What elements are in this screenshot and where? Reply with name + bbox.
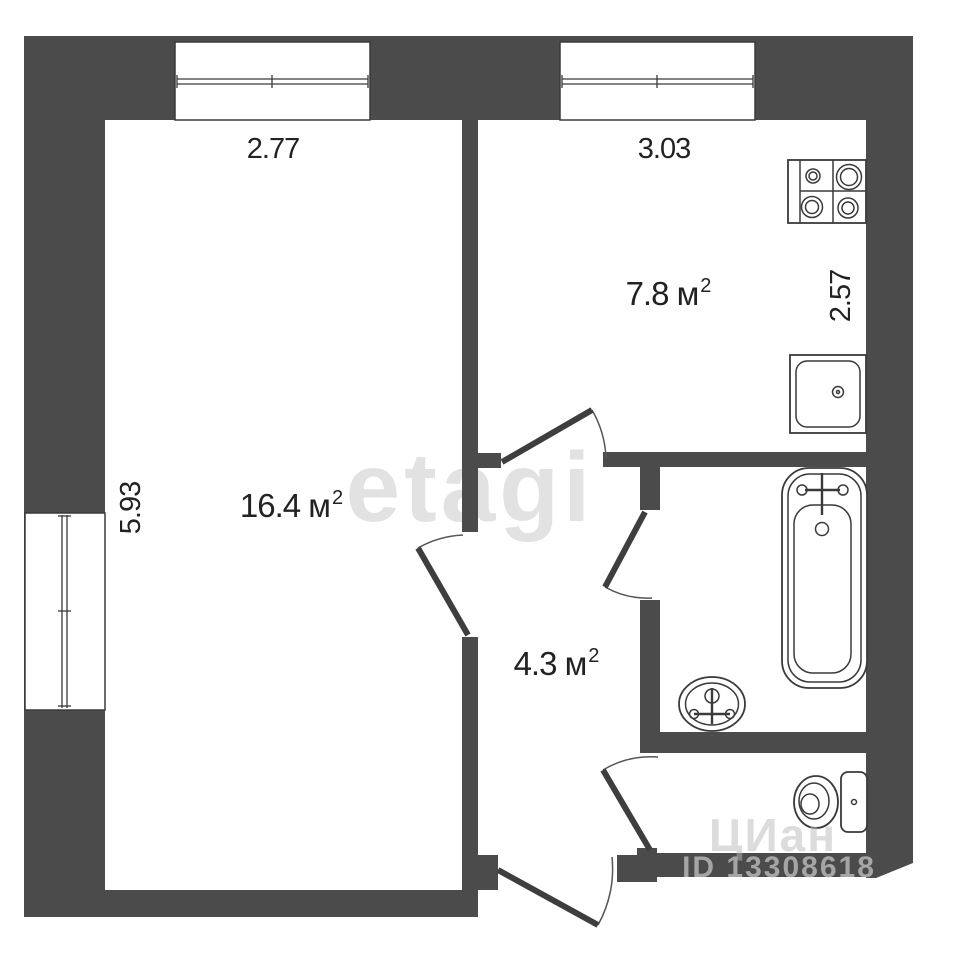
wall-bathroom-left-lower bbox=[640, 600, 660, 753]
dim-living-width: 2.77 bbox=[247, 133, 299, 165]
door-entrance-arc bbox=[598, 857, 613, 925]
label-kitchen-area: 7.8 м2 bbox=[626, 275, 712, 312]
door-entrance-leaf bbox=[498, 870, 598, 925]
label-living-area: 16.4 м2 bbox=[240, 487, 343, 524]
bathtub-icon bbox=[782, 468, 867, 688]
wall-divider-living-upper bbox=[462, 120, 478, 532]
wall-kitchen-bathroom bbox=[603, 452, 866, 467]
stove-icon bbox=[788, 160, 866, 223]
dim-kitchen-width: 3.03 bbox=[638, 133, 690, 165]
door-bathroom-leaf bbox=[605, 512, 645, 587]
wall-right bbox=[866, 36, 913, 878]
wall-bottom-hall-right-stub bbox=[617, 855, 657, 882]
floor-plan: etagi bbox=[0, 0, 960, 960]
door-toilet-arc bbox=[603, 757, 658, 770]
dim-kitchen-depth: 2.57 bbox=[825, 270, 857, 322]
wall-bathroom-left-upper bbox=[640, 467, 660, 510]
door-toilet bbox=[603, 757, 658, 850]
wall-divider-living-lower bbox=[462, 637, 478, 890]
floor-plan-canvas: etagi bbox=[0, 0, 960, 960]
door-bathroom-arc bbox=[605, 587, 652, 598]
door-bathroom bbox=[605, 512, 652, 598]
window-living bbox=[175, 42, 370, 120]
door-living bbox=[418, 535, 468, 635]
wall-bottom-living bbox=[24, 890, 478, 917]
dim-living-depth: 5.93 bbox=[115, 482, 147, 534]
kitchen-sink-icon bbox=[790, 355, 866, 433]
window-balcony bbox=[25, 513, 105, 710]
wall-top bbox=[24, 36, 913, 120]
wall-bathroom-toilet bbox=[640, 732, 866, 753]
label-hallway-area: 4.3 м2 bbox=[514, 645, 600, 682]
door-entrance bbox=[498, 857, 613, 925]
listing-id: ID 13308618 bbox=[682, 851, 876, 884]
door-living-leaf bbox=[418, 548, 468, 635]
window-kitchen bbox=[560, 42, 755, 120]
door-toilet-leaf bbox=[603, 770, 650, 850]
wall-kitchen-door-stub bbox=[462, 453, 501, 468]
washbasin-icon bbox=[679, 677, 745, 731]
wall-left bbox=[24, 36, 105, 917]
